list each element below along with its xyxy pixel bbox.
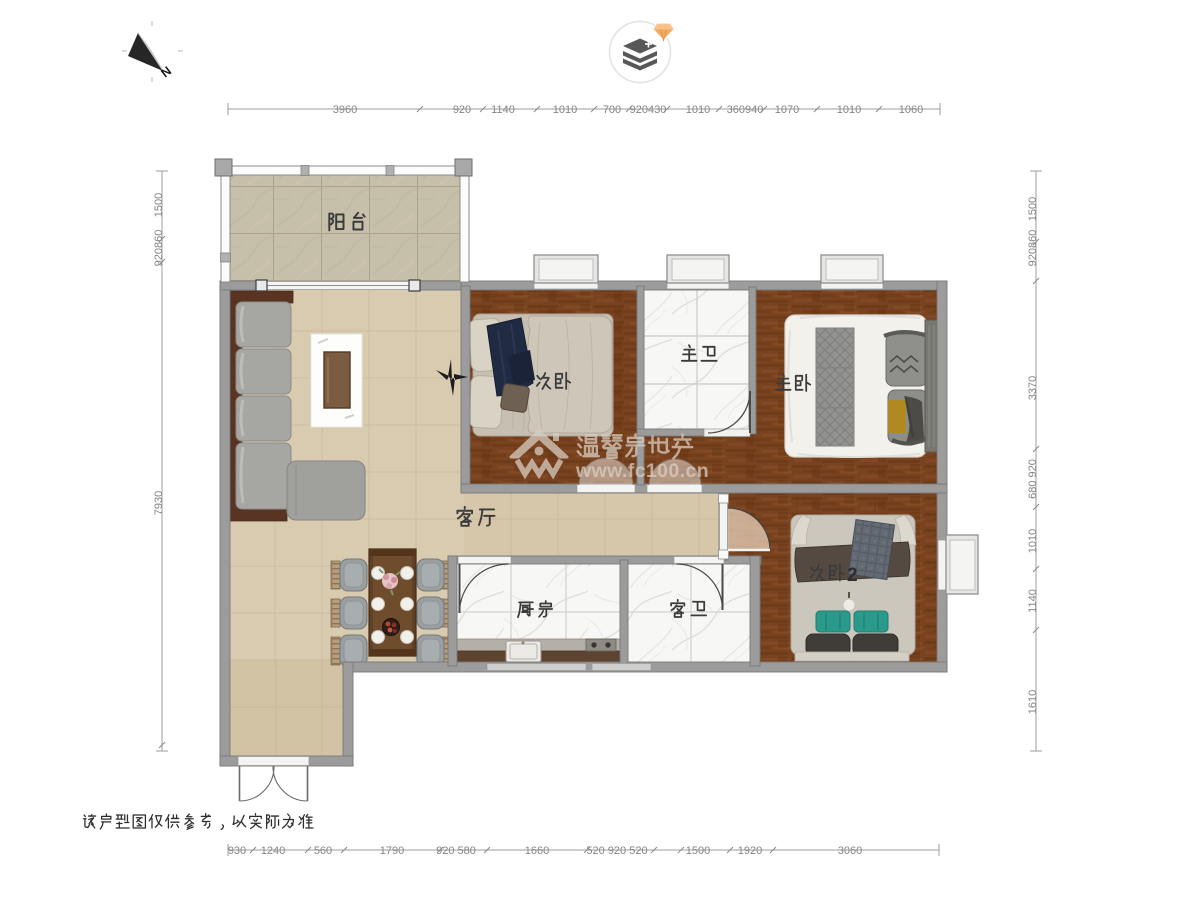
svg-text:2: 2 <box>847 565 858 586</box>
svg-text:360940: 360940 <box>727 104 764 116</box>
svg-text:1140: 1140 <box>491 104 515 116</box>
svg-text:560: 560 <box>314 845 332 857</box>
svg-text:7930: 7930 <box>153 491 165 515</box>
svg-text:1790: 1790 <box>380 845 404 857</box>
svg-text:1920: 1920 <box>738 845 762 857</box>
svg-text:920 580: 920 580 <box>436 845 476 857</box>
svg-text:930: 930 <box>228 845 246 857</box>
svg-text:1500: 1500 <box>153 193 165 217</box>
svg-text:1500: 1500 <box>1027 197 1039 221</box>
svg-text:1060: 1060 <box>899 104 923 116</box>
svg-text:920: 920 <box>453 104 471 116</box>
svg-text:680 920: 680 920 <box>1027 459 1039 499</box>
svg-text:520 920 520: 520 920 520 <box>586 845 647 857</box>
svg-text:www.fc100.cn: www.fc100.cn <box>575 460 709 482</box>
svg-text:1010: 1010 <box>686 104 710 116</box>
svg-text:700: 700 <box>603 104 621 116</box>
svg-text:3370: 3370 <box>1027 376 1039 400</box>
svg-text:1500: 1500 <box>686 845 710 857</box>
svg-text:1140: 1140 <box>1027 589 1039 613</box>
svg-text:1070: 1070 <box>775 104 799 116</box>
svg-text:3060: 3060 <box>838 845 862 857</box>
svg-text:1010: 1010 <box>837 104 861 116</box>
svg-text:1010: 1010 <box>1027 529 1039 553</box>
svg-text:3960: 3960 <box>333 104 357 116</box>
svg-text:920430: 920430 <box>630 104 667 116</box>
svg-text:1610: 1610 <box>1027 690 1039 714</box>
svg-text:920860: 920860 <box>1027 230 1039 267</box>
svg-text:920860: 920860 <box>153 230 165 267</box>
svg-text:1660: 1660 <box>525 845 549 857</box>
svg-text:1010: 1010 <box>553 104 577 116</box>
svg-text:1240: 1240 <box>261 845 285 857</box>
